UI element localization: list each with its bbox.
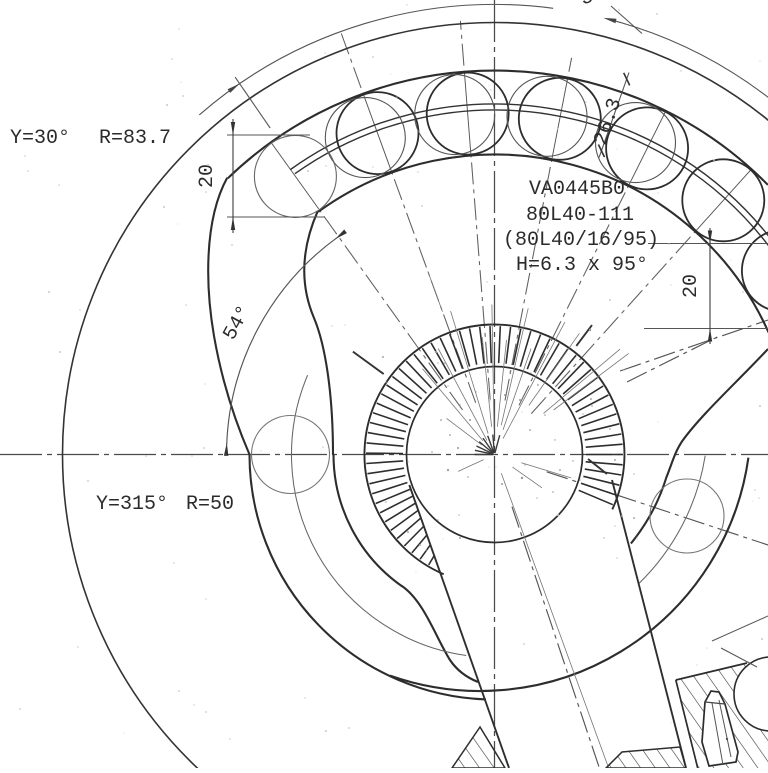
svg-text:R=83.7: R=83.7 — [99, 127, 171, 150]
svg-text:80L40-111: 80L40-111 — [526, 204, 634, 227]
svg-text:20: 20 — [680, 274, 703, 298]
svg-text:VA0445B0: VA0445B0 — [529, 178, 625, 201]
svg-text:Y=30°: Y=30° — [10, 127, 70, 150]
svg-text:H=6.3 x 95°: H=6.3 x 95° — [516, 254, 648, 277]
svg-text:R=50: R=50 — [186, 493, 234, 516]
svg-text:20: 20 — [196, 164, 219, 188]
svg-text:(80L40/16/95): (80L40/16/95) — [503, 229, 659, 252]
svg-text:Y=315°: Y=315° — [96, 493, 168, 516]
